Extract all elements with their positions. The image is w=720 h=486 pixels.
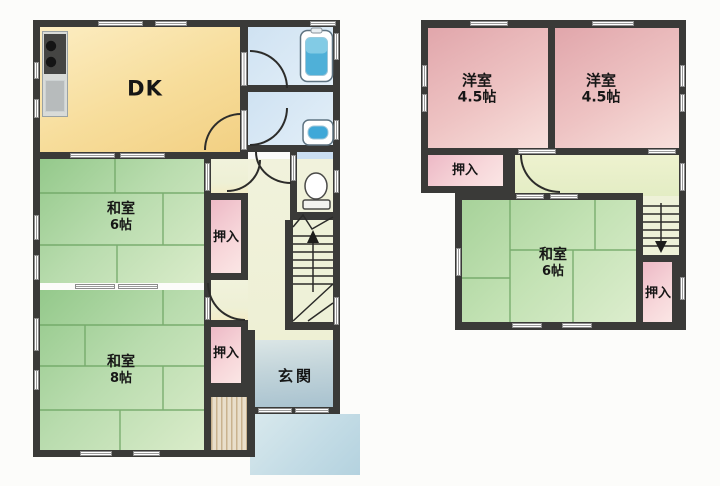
label-oshiire-lower: 押入: [213, 346, 239, 362]
label-oshiire-2f-right: 押入: [645, 286, 671, 302]
kitchen-sink-icon: [45, 80, 65, 112]
label-oshiire-2f-left: 押入: [452, 163, 478, 179]
window: [155, 21, 187, 26]
wall-youshitsu-divider: [548, 20, 555, 155]
entrance-porch: [250, 414, 360, 475]
door-opening: [241, 52, 247, 86]
wall-stairs-bottom: [285, 322, 340, 330]
wall-washitsu-2f-top: [455, 193, 640, 200]
entrance-door: [258, 408, 292, 413]
wall-stairs-left: [285, 220, 293, 322]
window: [680, 163, 685, 191]
room-size: 6帖: [539, 264, 567, 280]
window: [680, 94, 685, 112]
label-oshiire-upper: 押入: [213, 230, 239, 246]
window: [98, 21, 143, 26]
window: [34, 99, 39, 118]
room-size: 4.5帖: [458, 90, 497, 107]
door-opening: [241, 110, 247, 150]
sliding-door: [75, 284, 115, 289]
floor-plan-canvas: DK 和室 6帖 押入 和室 8帖 押入 玄関: [0, 0, 720, 486]
window: [34, 370, 39, 390]
room-size: 6帖: [107, 218, 135, 234]
room-name: 和室: [539, 247, 567, 264]
room-name: 和室: [107, 201, 135, 218]
wall-toilet-bottom: [290, 212, 340, 220]
window: [456, 248, 461, 276]
room-size: 4.5帖: [582, 90, 621, 107]
door-opening: [291, 155, 296, 181]
window: [592, 21, 634, 26]
window: [334, 170, 339, 193]
label-washitsu-8: 和室 8帖: [107, 354, 135, 386]
label-dk: DK: [127, 76, 163, 101]
window: [34, 215, 39, 240]
wall-washroom-bottom: [248, 145, 340, 152]
sliding-door: [516, 194, 544, 199]
window: [334, 120, 339, 140]
sliding-door: [550, 194, 578, 199]
window: [334, 33, 339, 60]
door-opening: [648, 149, 676, 154]
staircase-1f: [293, 220, 333, 322]
label-washitsu-6-2f: 和室 6帖: [539, 247, 567, 279]
window: [34, 318, 39, 351]
window: [80, 451, 112, 456]
window: [422, 65, 427, 87]
window: [680, 277, 685, 300]
window: [310, 21, 336, 26]
window: [34, 255, 39, 280]
sliding-door: [205, 163, 210, 191]
room-name: 洋室: [582, 72, 621, 90]
window: [133, 451, 160, 456]
window: [334, 297, 339, 325]
room-name: 和室: [107, 354, 135, 371]
window: [34, 62, 39, 79]
veranda-strip: [211, 397, 247, 450]
room-name: 洋室: [458, 72, 497, 90]
window: [680, 65, 685, 87]
wall-stairs-2f-left: [636, 193, 643, 255]
entrance-door: [295, 408, 329, 413]
door-opening: [518, 149, 556, 154]
sliding-door: [120, 153, 165, 158]
room-size: 8帖: [107, 371, 135, 387]
staircase-2f: [643, 196, 679, 255]
window: [512, 323, 542, 328]
window: [422, 94, 427, 112]
sliding-door: [70, 153, 115, 158]
label-youshitsu-left: 洋室 4.5帖: [458, 72, 497, 107]
label-genkan: 玄関: [278, 367, 314, 385]
sliding-door: [118, 284, 158, 289]
label-washitsu-6: 和室 6帖: [107, 201, 135, 233]
wall-genkan-left: [247, 330, 255, 457]
kitchen-stove-icon: [44, 34, 66, 74]
sliding-door: [205, 297, 210, 320]
label-youshitsu-right: 洋室 4.5帖: [582, 72, 621, 107]
window: [470, 21, 508, 26]
window: [562, 323, 592, 328]
